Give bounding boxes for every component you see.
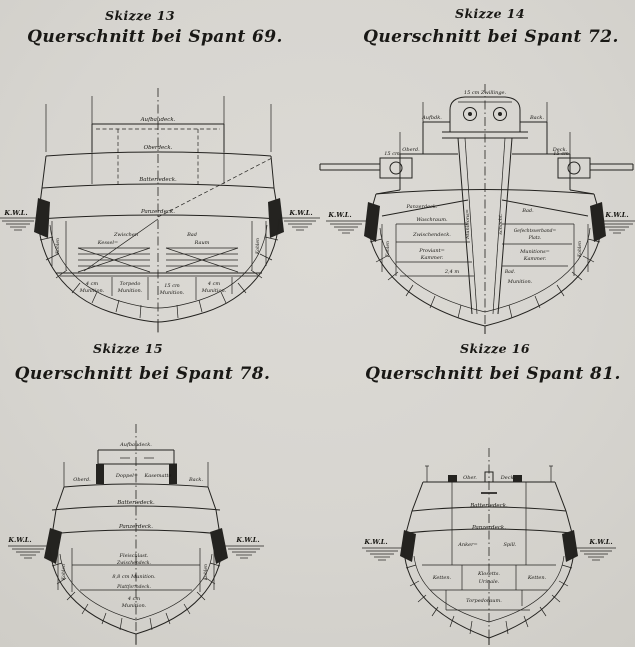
s15-label-back: Back.	[188, 477, 203, 483]
s14-label-gun-right: 15 cm	[553, 151, 569, 157]
sketch-14-drawing: 15 cm Zwillinge. Munitions= schacht. Auf…	[318, 84, 635, 336]
s15-caption: Querschnitt bei Spant 78.	[0, 364, 285, 384]
s13-label-kessel: Kessel=	[97, 240, 118, 246]
s13-side-armor	[34, 198, 284, 238]
s14-label-aufbau-right: Back.	[529, 115, 544, 121]
s14-label-gefecht-1: Gefechtsverband=	[514, 228, 557, 234]
s14-label-proviant-1: Proviant=	[418, 248, 445, 254]
s13-label-mag2a: Torpedo	[120, 281, 141, 287]
s16-label-ober-right: Deck.	[500, 475, 516, 481]
s14-label-zwischendeck: Zwischendeck.	[412, 232, 451, 238]
s14-label-turret: 15 cm Zwillinge.	[464, 90, 507, 96]
s14-label-ober-left: Oberd.	[402, 147, 420, 153]
s15-label-zwischendeck: Zwischendeck.	[116, 560, 151, 566]
s16-sketch-number: Skizze 16	[400, 341, 590, 356]
s13-hull	[38, 219, 279, 332]
s14-waterline-label-left: K.W.L.	[327, 211, 351, 219]
sketch-15-drawing: Aufbaudeck. Doppel= Kasematte Oberd. Bac…	[0, 424, 318, 647]
s15-label-magazine-2b: Munition.	[121, 603, 147, 609]
s13-label-mag3a: 15 cm	[164, 283, 180, 289]
s16-label-ketten-left: Ketten.	[432, 575, 452, 581]
s16-label-torpedoraum: Torpedoraum.	[466, 598, 502, 604]
s14-label-proviant-2: Kammer.	[420, 255, 444, 261]
s15-label-magazine-1: 8,8 cm Munition.	[112, 574, 156, 580]
sketch-16-drawing: Ober. Deck. Batteriedeck. Panzerdeck. An…	[318, 448, 635, 647]
s13-label-oberdeck: Oberdeck.	[144, 145, 173, 151]
s15-label-aufbaudeck: Aufbaudeck.	[119, 442, 152, 448]
s15-label-plattformdeck: Plattformdeck.	[116, 584, 151, 590]
s15-label-kasematte-1: Doppel=	[115, 473, 138, 479]
s16-label-ober-left: Ober.	[463, 475, 477, 481]
s13-waterline-label-left: K.W.L.	[3, 209, 27, 217]
s15-waterline-label-left: K.W.L.	[7, 536, 31, 544]
s13-label-raum: Raum	[194, 240, 210, 246]
s13-waterline-label-right: K.W.L.	[288, 209, 312, 217]
s14-label-bad-small: Bad.	[504, 269, 516, 275]
s15-waterline-label-right: K.W.L.	[235, 536, 259, 544]
s14-label-munition: Munition.	[507, 279, 533, 285]
s14-label-panzerdeck: Panzerdeck.	[406, 204, 438, 210]
sketch-13-drawing: Aufbaudeck. Oberdeck. Batteriedeck. Panz…	[0, 88, 318, 335]
s14-label-coal-right: Kohlen	[577, 241, 583, 258]
s16-label-urinale: Urinale.	[479, 579, 500, 585]
s16-caption: Querschnitt bei Spant 81.	[358, 364, 628, 384]
s13-label-zwischen: Zwischen	[113, 232, 138, 238]
s16-label-ketten-right: Ketten.	[527, 575, 547, 581]
s15-label-coal-left: Kohlen	[61, 564, 67, 581]
s15-label-kasematte-2: Kasematte	[144, 473, 172, 479]
s13-caption: Querschnitt bei Spant 69.	[5, 27, 305, 47]
s14-label-waschraum: Waschraum.	[416, 217, 448, 223]
s14-gun-right	[558, 158, 633, 178]
s14-label-bad-top: Bad.	[521, 208, 534, 214]
s13-label-mag4a: 4 cm	[207, 281, 221, 287]
s16-label-batteriedeck: Batteriedeck.	[469, 503, 508, 509]
s14-label-gun-left: 15 cm	[384, 151, 400, 157]
s13-label-mag4b: Munition.	[201, 288, 227, 294]
s16-waterline-label-right: K.W.L.	[588, 538, 612, 546]
s16-label-panzerdeck: Panzerdeck.	[471, 525, 506, 531]
s15-label-fleischlast: Fleischlast.	[119, 553, 149, 559]
s14-label-munitions-2: Kammer.	[523, 256, 547, 262]
s13-coal-bunkers	[52, 221, 266, 270]
s14-label-depth-note: 2,4 m	[444, 269, 460, 275]
s13-label-mag3b: Munition.	[159, 290, 185, 296]
s13-label-panzerdeck: Panzerdeck.	[140, 209, 175, 215]
s16-label-ankerspill-2: Spill.	[503, 542, 516, 548]
s14-gun-left	[320, 158, 412, 178]
s13-label-coal-right: Kohlen	[255, 238, 261, 255]
s14-label-trunk-left: Munitions=	[465, 209, 471, 240]
s14-label-gefecht-2: Platz.	[528, 235, 542, 241]
s14-label-aufbau-left: Aufbdk.	[421, 115, 442, 121]
s15-label-oberdeck: Oberd.	[73, 477, 91, 483]
s16-waterline-label-left: K.W.L.	[363, 538, 387, 546]
s15-label-batteriedeck: Batteriedeck.	[116, 500, 155, 506]
s14-label-munitions-1: Munitions=	[519, 249, 550, 255]
s13-label-aufbaudeck: Aufbaudeck.	[140, 117, 176, 123]
s13-label-bad: Bad	[186, 232, 197, 238]
s13-superstructure	[46, 96, 271, 184]
s13-label-mag2b: Munition.	[117, 288, 143, 294]
s14-waterline-label-right: K.W.L.	[604, 211, 628, 219]
s13-label-batteriedeck: Batteriedeck.	[138, 177, 177, 183]
s15-label-magazine-2a: 4 cm	[127, 596, 141, 602]
s14-sketch-number: Skizze 14	[395, 6, 585, 21]
s15-sketch-number: Skizze 15	[28, 341, 228, 356]
s13-sketch-number: Skizze 13	[40, 8, 240, 23]
s15-label-panzerdeck: Panzerdeck.	[118, 524, 153, 530]
s16-label-ankerspill-1: Anker=	[457, 542, 477, 548]
s14-caption: Querschnitt bei Spant 72.	[362, 27, 620, 47]
scan-page: Skizze 13 Querschnitt bei Spant 69. Skiz…	[0, 0, 635, 647]
s16-label-klosetts: Klosetts.	[477, 571, 500, 577]
